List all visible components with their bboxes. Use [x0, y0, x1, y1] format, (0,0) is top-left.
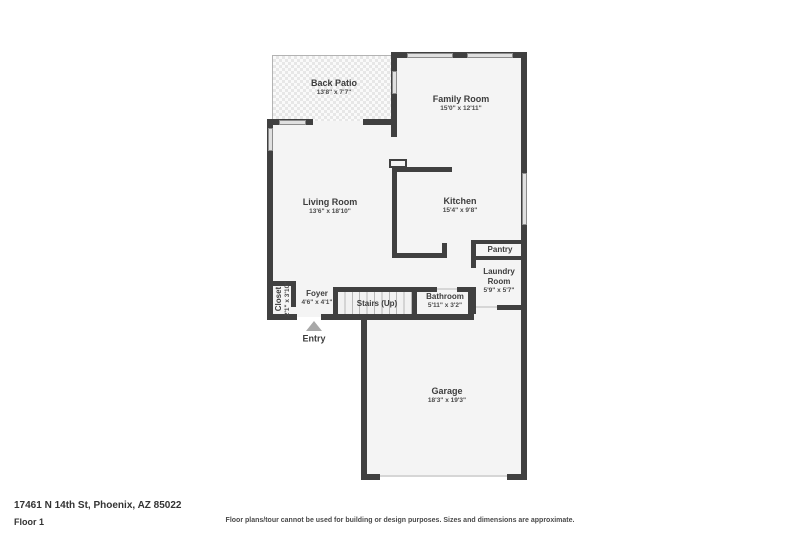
room-label-foyer: Foyer 4'6" x 4'1" [302, 289, 333, 307]
wall-pantry-left [471, 240, 476, 268]
bathroom-dims: 5'11" x 3'2" [426, 302, 464, 310]
room-label-living-room: Living Room 13'6" x 18'10" [303, 197, 358, 217]
garage-name: Garage [428, 386, 466, 397]
wall-stairs-bath-top [333, 287, 437, 292]
room-label-back-patio: Back Patio 13'8" x 7'7" [311, 78, 357, 98]
wall-kitchen-vertical [392, 165, 397, 258]
family-room-name: Family Room [433, 94, 490, 105]
back-patio-name: Back Patio [311, 78, 357, 89]
disclaimer-text: Floor plans/tour cannot be used for buil… [226, 517, 575, 524]
window-family-room-top-left [407, 53, 453, 58]
wall-garage-bottom-right [507, 474, 527, 480]
kitchen-name: Kitchen [443, 196, 478, 207]
floor-label: Floor 1 [14, 517, 44, 527]
laundry-room-name: Laundry Room [479, 267, 519, 287]
room-label-entry: Entry [302, 333, 325, 344]
room-label-laundry-room: Laundry Room 5'9" x 5'7" [479, 267, 519, 295]
wall-bathroom-right [468, 287, 474, 320]
wall-kitchen-stub [442, 243, 447, 255]
garage-door-line [380, 475, 507, 477]
bathroom-name: Bathroom [426, 292, 464, 302]
window-family-room-patio [392, 71, 397, 94]
window-kitchen-right [522, 173, 527, 225]
room-label-closet: Closet 2'1" x 3'10" [274, 282, 292, 317]
room-label-bathroom: Bathroom 5'11" x 3'2" [426, 292, 464, 310]
family-room-dims: 15'0" x 12'11" [433, 105, 490, 113]
property-address: 17461 N 14th St, Phoenix, AZ 85022 [14, 500, 181, 511]
window-living-room-left [268, 128, 273, 151]
wall-bottom-main [321, 314, 474, 320]
stairs-name: Stairs (Up) [357, 299, 397, 309]
window-family-room-top-right [467, 53, 513, 58]
laundry-door-line [476, 306, 497, 308]
garage-dims: 18'3" x 19'3" [428, 397, 466, 405]
wall-right [521, 52, 527, 480]
closet-dims: 2'1" x 3'10" [284, 282, 292, 317]
living-room-dims: 13'6" x 18'10" [303, 208, 358, 216]
laundry-room-dims: 5'9" x 5'7" [479, 287, 519, 295]
window-living-room-patio [279, 120, 306, 125]
floor-plan-page: { "floor_plan": { "rooms": { "back_patio… [0, 0, 800, 533]
floor-plan: Back Patio 13'8" x 7'7" Family Room 15'0… [0, 0, 800, 533]
room-label-pantry: Pantry [488, 245, 513, 255]
kitchen-dims: 15'4" x 9'8" [443, 207, 478, 215]
closet-name: Closet [274, 282, 284, 317]
living-room-name: Living Room [303, 197, 358, 208]
wall-stairs-bath-divider [412, 292, 417, 319]
bathroom-door-line [437, 288, 457, 290]
entry-arrow-icon [306, 321, 322, 331]
room-label-stairs: Stairs (Up) [357, 299, 397, 309]
entry-name: Entry [302, 333, 325, 344]
pantry-name: Pantry [488, 245, 513, 255]
wall-pantry-top [476, 240, 521, 244]
wall-patio-bottom-right [363, 119, 397, 125]
room-label-family-room: Family Room 15'0" x 12'11" [433, 94, 490, 114]
wall-stairs-left [333, 287, 338, 320]
wall-laundry-bottom [497, 305, 527, 310]
wall-kitchen-bottom [392, 253, 447, 258]
kitchen-corner-notch [389, 159, 407, 168]
room-label-kitchen: Kitchen 15'4" x 9'8" [443, 196, 478, 216]
foyer-dims: 4'6" x 4'1" [302, 299, 333, 307]
wall-garage-left [361, 314, 367, 480]
room-label-garage: Garage 18'3" x 19'3" [428, 386, 466, 406]
foyer-name: Foyer [302, 289, 333, 299]
wall-pantry-laundry-divider [471, 256, 521, 260]
wall-garage-bottom-left [361, 474, 380, 480]
back-patio-dims: 13'8" x 7'7" [311, 89, 357, 97]
